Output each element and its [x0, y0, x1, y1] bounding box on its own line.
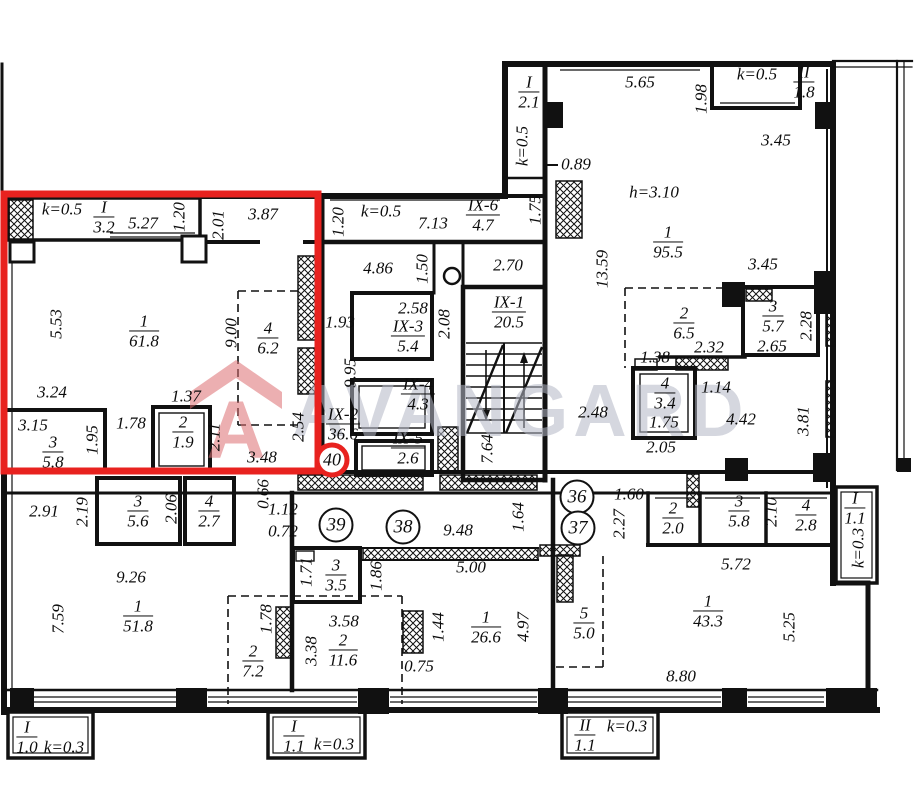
- dimension-label-vertical: k=0.3: [850, 528, 867, 568]
- dimension-label-vertical: 1.50: [414, 254, 431, 284]
- dimension-label-vertical: 0.66: [255, 479, 272, 509]
- dimension-label: 5.72: [721, 556, 751, 573]
- dimension-label: k=0.3: [44, 739, 84, 756]
- dimension-label-vertical: 5.25: [781, 612, 798, 642]
- room-area: 2.7: [198, 512, 219, 531]
- dimension-label-vertical: 9.00: [223, 318, 240, 348]
- room-label: II1.8: [793, 62, 814, 101]
- dimension-label: 2.48: [578, 404, 608, 421]
- dimension-label: 1.78: [116, 415, 146, 432]
- room-label: IX-236.6: [326, 404, 360, 443]
- dimension-label: 3.15: [18, 417, 48, 434]
- room-label: 126.6: [471, 607, 501, 646]
- unit-number-marker[interactable]: 37: [561, 511, 596, 546]
- room-number: II: [793, 62, 814, 82]
- room-label: I2.1: [518, 72, 539, 111]
- dimension-label-vertical: 2.08: [436, 309, 453, 339]
- room-number: 4: [257, 318, 278, 338]
- dimension-label: 1.12: [268, 501, 298, 518]
- room-number: I: [844, 488, 865, 508]
- room-area: 3.4: [654, 394, 675, 413]
- dimension-label: k=0.5: [737, 66, 777, 83]
- room-area: 5.8: [728, 512, 749, 531]
- dimension-label: 2.65: [757, 338, 787, 355]
- room-area: 3.2: [93, 218, 114, 237]
- dimension-label-vertical: 1.20: [171, 202, 188, 232]
- dimension-label: 2.58: [398, 300, 428, 317]
- dimension-label-vertical: 2.19: [74, 497, 91, 527]
- room-area: 4.7: [472, 216, 493, 235]
- dimension-label-vertical: 1.20: [330, 207, 347, 237]
- dimension-label: 3.48: [247, 449, 277, 466]
- dimension-label-vertical: k=0.5: [514, 126, 531, 166]
- room-area: 1.1: [283, 737, 304, 756]
- dimension-label-vertical: 2.06: [163, 494, 180, 524]
- room-label: 161.8: [129, 311, 159, 350]
- dimension-label: 1.37: [171, 388, 201, 405]
- room-number: IX-5: [391, 428, 425, 448]
- room-area: 1.0: [16, 738, 37, 757]
- room-label: II1.1: [574, 715, 595, 754]
- room-number: 4: [795, 495, 816, 515]
- room-number: 1: [653, 222, 683, 242]
- dimension-label: 1.93: [325, 314, 355, 331]
- dimension-label-vertical: 2.01: [210, 210, 227, 240]
- room-label: 195.5: [653, 222, 683, 261]
- room-label: 143.3: [693, 591, 723, 630]
- room-label: 27.2: [242, 641, 263, 680]
- room-number: IX-4: [401, 374, 435, 394]
- room-label: 43.4: [654, 373, 675, 412]
- room-area: 43.3: [693, 612, 723, 631]
- dimension-label-vertical: 4.97: [515, 612, 532, 642]
- room-number: 2: [329, 630, 358, 650]
- room-number: I: [518, 72, 539, 92]
- room-area: 51.8: [123, 617, 153, 636]
- room-label: 26.5: [673, 303, 694, 342]
- dimension-label: 4.86: [363, 260, 393, 277]
- room-label: 35.8: [728, 491, 749, 530]
- room-label: 46.2: [257, 318, 278, 357]
- room-label: 33.5: [325, 555, 346, 594]
- room-label: IX-64.7: [466, 195, 500, 234]
- room-label: I1.0: [16, 717, 37, 756]
- room-number: I: [93, 197, 114, 217]
- room-label: IX-120.5: [492, 292, 526, 331]
- room-label: 22.0: [662, 498, 683, 537]
- room-area: 6.5: [673, 324, 694, 343]
- room-number: 2: [242, 641, 263, 661]
- room-label: 211.6: [329, 630, 358, 669]
- floor-plan-page: A AVANGARD k=0.55.273.873.241.373.151.78…: [0, 0, 914, 800]
- room-number: 3: [42, 432, 63, 452]
- dimension-label: k=0.3: [314, 736, 354, 753]
- dimension-label-vertical: 1.98: [693, 84, 710, 114]
- dimension-label-vertical: 7.59: [50, 604, 67, 634]
- dimension-label: 3.24: [37, 384, 67, 401]
- dimension-label-vertical: 1.64: [510, 502, 527, 532]
- dimension-label: 5.27: [128, 215, 158, 232]
- room-area: 6.2: [257, 339, 278, 358]
- room-number: 4: [198, 491, 219, 511]
- dimension-label: 1.75: [649, 414, 679, 431]
- room-label: IX-52.6: [391, 428, 425, 467]
- room-area: 5.4: [397, 337, 418, 356]
- dimension-label-vertical: 2.11: [206, 423, 223, 452]
- dimension-label-vertical: 1.75: [527, 195, 544, 225]
- room-label: 42.7: [198, 491, 219, 530]
- dimension-label-vertical: 2.54: [290, 412, 307, 442]
- room-area: 7.2: [242, 662, 263, 681]
- room-area: 11.6: [329, 651, 358, 670]
- dimension-label: k=0.5: [42, 201, 82, 218]
- dimension-label: k=0.5: [361, 203, 401, 220]
- dimension-label: 1.38: [640, 349, 670, 366]
- dimension-label-vertical: 7.64: [479, 434, 496, 464]
- room-number: 1: [129, 311, 159, 331]
- dimension-label-vertical: 13.59: [594, 250, 611, 288]
- room-area: 61.8: [129, 332, 159, 351]
- dimension-label-vertical: 2.27: [611, 509, 628, 539]
- room-area: 3.5: [325, 576, 346, 595]
- room-number: IX-1: [492, 292, 526, 312]
- room-area: 1.1: [844, 509, 865, 528]
- dimension-label: 7.13: [418, 215, 448, 232]
- room-area: 1.8: [793, 83, 814, 102]
- room-area: 5.6: [127, 512, 148, 531]
- dimension-label: 3.87: [248, 206, 278, 223]
- room-area: 2.6: [397, 449, 418, 468]
- dimension-label: 8.80: [666, 668, 696, 685]
- room-number: 1: [693, 591, 723, 611]
- dimension-label: 0.75: [404, 658, 434, 675]
- dimension-label-vertical: 1.95: [84, 425, 101, 455]
- room-number: I: [283, 716, 304, 736]
- dimension-label: 2.32: [694, 339, 724, 356]
- room-area: 4.3: [407, 395, 428, 414]
- dimension-label: 5.00: [456, 559, 486, 576]
- dimension-label: 3.45: [748, 256, 778, 273]
- room-area: 2.1: [518, 93, 539, 112]
- room-label: I1.1: [283, 716, 304, 755]
- dimension-label-vertical: 5.53: [48, 309, 65, 339]
- dimension-label: 2.91: [29, 503, 59, 520]
- dimension-label: k=0.3: [607, 718, 647, 735]
- dimension-label: 9.26: [116, 569, 146, 586]
- dimension-label: 1.60: [614, 486, 644, 503]
- dimension-label-vertical: 9.95: [342, 358, 359, 388]
- room-area: 5.8: [42, 453, 63, 472]
- dimension-label: 2.05: [646, 439, 676, 456]
- unit-number-marker[interactable]: 38: [386, 510, 421, 545]
- room-label: I1.1: [844, 488, 865, 527]
- dimension-label-vertical: 2.10: [763, 497, 780, 527]
- room-label: 35.7: [762, 296, 783, 335]
- room-area: 5.0: [573, 624, 594, 643]
- room-label: 42.8: [795, 495, 816, 534]
- room-label: IX-44.3: [401, 374, 435, 413]
- dimension-label-vertical: 1.78: [258, 604, 275, 634]
- dimension-label-vertical: 3.38: [303, 636, 320, 666]
- dimension-label-vertical: 2.28: [798, 311, 815, 341]
- room-area: 95.5: [653, 243, 683, 262]
- dimension-label-vertical: 1.86: [368, 561, 385, 591]
- room-number: 4: [654, 373, 675, 393]
- room-number: 3: [728, 491, 749, 511]
- room-label: 21.9: [172, 412, 193, 451]
- dimension-label: 0.89: [561, 156, 591, 173]
- room-area: 2.0: [662, 519, 683, 538]
- room-number: 2: [172, 412, 193, 432]
- dimension-label: 3.45: [761, 132, 791, 149]
- room-area: 36.6: [328, 425, 358, 444]
- dimension-label: 1.14: [701, 379, 731, 396]
- room-label: 35.8: [42, 432, 63, 471]
- room-number: 1: [123, 596, 153, 616]
- room-number: 2: [673, 303, 694, 323]
- room-number: 5: [573, 603, 594, 623]
- dimension-label: 4.42: [726, 411, 756, 428]
- room-number: IX-6: [466, 195, 500, 215]
- room-number: 3: [127, 491, 148, 511]
- room-number: 2: [662, 498, 683, 518]
- room-area: 1.1: [574, 736, 595, 755]
- room-number: 3: [762, 296, 783, 316]
- room-label: I3.2: [93, 197, 114, 236]
- dimension-label: 9.48: [443, 522, 473, 539]
- room-label: 55.0: [573, 603, 594, 642]
- room-label: IX-35.4: [391, 316, 425, 355]
- room-number: IX-3: [391, 316, 425, 336]
- room-label: 35.6: [127, 491, 148, 530]
- room-number: II: [574, 715, 595, 735]
- dimension-label-vertical: 3.81: [795, 406, 812, 436]
- room-area: 1.9: [172, 433, 193, 452]
- room-number: 3: [325, 555, 346, 575]
- dimension-label: 0.72: [268, 523, 298, 540]
- room-area: 26.6: [471, 628, 501, 647]
- dimension-label: 5.65: [625, 74, 655, 91]
- unit-number-marker[interactable]: 40: [315, 443, 350, 478]
- unit-number-marker[interactable]: 36: [560, 480, 595, 515]
- room-number: 1: [471, 607, 501, 627]
- room-area: 20.5: [494, 313, 524, 332]
- unit-number-marker[interactable]: 39: [319, 508, 354, 543]
- room-area: 2.8: [795, 516, 816, 535]
- dimension-label: 3.58: [329, 613, 359, 630]
- dimension-label: 2.70: [493, 257, 523, 274]
- room-number: IX-2: [326, 404, 360, 424]
- room-label: 151.8: [123, 596, 153, 635]
- room-number: I: [16, 717, 37, 737]
- room-area: 5.7: [762, 317, 783, 336]
- dimension-label-vertical: 1.71: [298, 557, 315, 587]
- dimension-label-vertical: 1.44: [430, 612, 447, 642]
- dimension-label: h=3.10: [629, 184, 679, 201]
- labels-layer: k=0.55.273.873.241.373.151.783.48k=0.57.…: [0, 0, 914, 800]
